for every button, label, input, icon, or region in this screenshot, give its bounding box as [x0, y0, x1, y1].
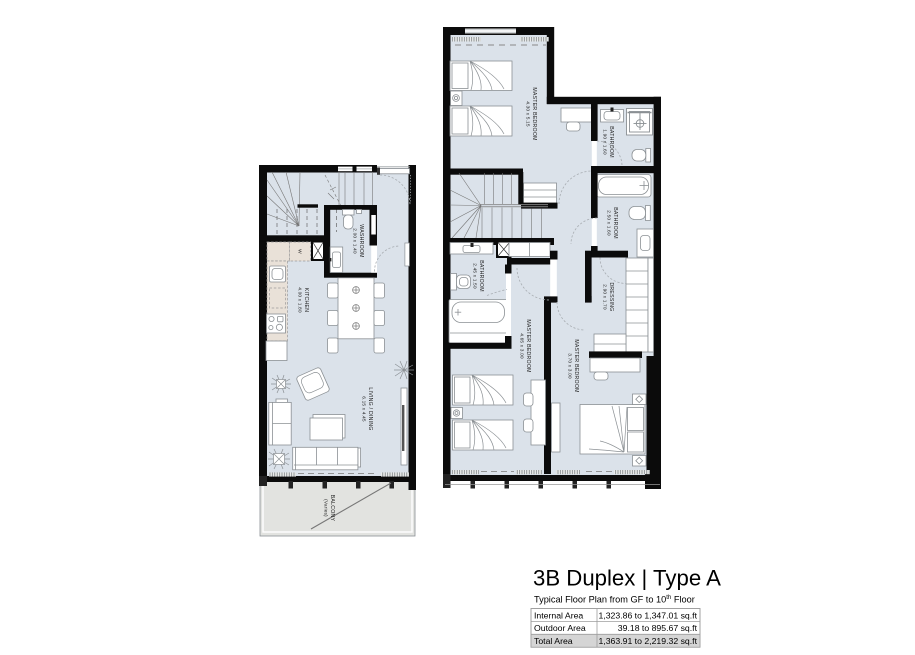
svg-text:BALCONY: BALCONY: [329, 495, 335, 522]
svg-text:6.15 x 4.45: 6.15 x 4.45: [360, 396, 366, 422]
svg-text:W: W: [297, 249, 303, 254]
svg-text:MASTER BEDROOM: MASTER BEDROOM: [573, 339, 579, 392]
svg-text:BATHROOM: BATHROOM: [478, 260, 484, 292]
svg-text:1,323.86 to 1,347.01 sq.ft: 1,323.86 to 1,347.01 sq.ft: [598, 610, 697, 620]
svg-text:39.18 to 895.67 sq.ft: 39.18 to 895.67 sq.ft: [618, 623, 698, 633]
svg-text:Typical Floor Plan from GF to: Typical Floor Plan from GF to 10th Floor: [534, 595, 695, 605]
svg-text:3B Duplex | Type A: 3B Duplex | Type A: [533, 566, 721, 591]
svg-text:BATHROOM: BATHROOM: [612, 207, 618, 239]
svg-text:Internal Area: Internal Area: [534, 610, 583, 620]
svg-text:(Varies): (Varies): [322, 499, 328, 517]
svg-text:4.65 x 3.00: 4.65 x 3.00: [518, 333, 524, 359]
svg-text:1,363.91 to 2,219.32 sq.ft: 1,363.91 to 2,219.32 sq.ft: [598, 636, 697, 646]
svg-text:BATHROOM: BATHROOM: [608, 126, 614, 158]
svg-text:1.90 x 1.60: 1.90 x 1.60: [601, 129, 607, 155]
svg-text:2.00 x 1.40: 2.00 x 1.40: [351, 228, 357, 254]
svg-text:4.30 x 5.15: 4.30 x 5.15: [524, 101, 530, 127]
svg-text:DRESSING: DRESSING: [608, 282, 614, 311]
svg-text:2.50 x 1.60: 2.50 x 1.60: [605, 210, 611, 236]
svg-text:LIVING / DINING: LIVING / DINING: [367, 387, 373, 430]
svg-text:MASTER BEDROOM: MASTER BEDROOM: [525, 319, 531, 372]
svg-text:KITCHEN: KITCHEN: [303, 288, 309, 313]
svg-text:4.00 x 1.80: 4.00 x 1.80: [296, 287, 302, 313]
svg-text:2.90 x 1.70: 2.90 x 1.70: [601, 284, 607, 310]
svg-text:2.45 x 1.50: 2.45 x 1.50: [471, 263, 477, 289]
svg-text:MASTER BEDROOM: MASTER BEDROOM: [531, 87, 537, 140]
svg-text:WASHROOM: WASHROOM: [358, 224, 364, 258]
svg-text:3.70 x 3.00: 3.70 x 3.00: [566, 353, 572, 379]
svg-text:Outdoor Area: Outdoor Area: [534, 623, 586, 633]
svg-text:Total Area: Total Area: [534, 636, 573, 646]
